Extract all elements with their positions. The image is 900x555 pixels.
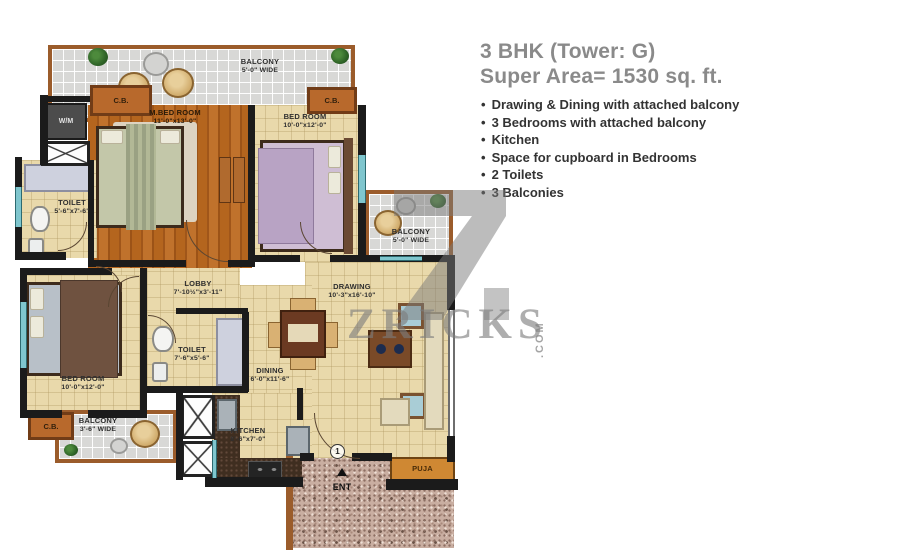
door-number: 1 <box>335 447 339 456</box>
balcony-right-label: BALCONY 5'-0" WIDE <box>375 227 447 246</box>
cb-label: C.B. <box>114 96 129 105</box>
bullet-icon: • <box>481 167 486 182</box>
wall <box>255 255 300 262</box>
room-name: M.BED ROOM <box>149 108 201 117</box>
wall <box>40 95 48 165</box>
entrance-label: ENT <box>322 468 362 495</box>
feature-text: 2 Toilets <box>492 167 544 182</box>
room-dims: 5'-6"x7'-6" <box>40 208 104 217</box>
wall <box>176 393 183 480</box>
feature-item: •Drawing & Dining with attached balcony <box>481 96 739 114</box>
wall <box>447 255 455 310</box>
pillow <box>328 172 341 194</box>
room-name: BED ROOM <box>284 112 327 121</box>
room-dims: 10'-3"x16'-10" <box>312 292 392 301</box>
wall <box>176 308 248 314</box>
watermark-suffix: .COM <box>534 321 546 358</box>
room-dims: 11'-0"x13'-0" <box>120 118 230 127</box>
feature-text: 3 Balconies <box>492 185 564 200</box>
wall <box>300 453 314 461</box>
balcony-door-window <box>380 256 422 261</box>
room-name: DRAWING <box>333 282 371 291</box>
wall <box>22 410 62 418</box>
room-name: BALCONY <box>79 416 117 425</box>
pillow <box>30 316 44 338</box>
kitchen-label: KITCHEN 8'-6"x7'-0" <box>218 426 278 445</box>
toilet2-label: TOILET 7'-6"x5'-6" <box>152 345 232 364</box>
armchair <box>380 398 410 426</box>
bedroom3-label: BED ROOM 10'-0"x12'-0" <box>35 374 131 393</box>
room-name: TOILET <box>178 345 206 354</box>
wall <box>147 386 248 393</box>
room-name: KITCHEN <box>231 426 266 435</box>
puja-room: PUJA <box>390 457 455 481</box>
feature-list: •Drawing & Dining with attached balcony … <box>481 96 739 201</box>
wicker-chair <box>162 68 194 98</box>
title-line2: Super Area= 1530 sq. ft. <box>480 65 723 90</box>
lift-shaft <box>181 441 215 477</box>
room-dims: 3'-6" WIDE <box>62 426 134 435</box>
room-dims: 7'-6"x5'-6" <box>152 355 232 364</box>
window <box>358 155 366 203</box>
bullet-icon: • <box>481 132 486 147</box>
wall <box>447 436 455 462</box>
room-dims: 10'-0"x12'-0" <box>255 122 355 131</box>
floor-plan-page: BALCONY 5'-0" WIDE C.B. C.B. W/M TOILET … <box>0 0 900 555</box>
bed-headboard <box>344 138 353 254</box>
lobby-label: LOBBY 7'-10½"x3'-11" <box>160 279 236 298</box>
feature-text: Drawing & Dining with attached balcony <box>492 97 740 112</box>
side-table <box>398 303 424 329</box>
pillow <box>101 130 123 144</box>
wall <box>297 388 303 420</box>
pillow <box>328 146 341 168</box>
room-dims: 7'-10½"x3'-11" <box>160 289 236 298</box>
balcony-top-label: BALCONY 5'-0" WIDE <box>205 57 315 76</box>
plant-icon <box>430 194 446 208</box>
feature-text: 3 Bedrooms with attached balcony <box>492 115 707 130</box>
feature-text: Kitchen <box>492 132 540 147</box>
room-name: LOBBY <box>184 279 211 288</box>
plant-icon <box>64 444 78 456</box>
room-name: DINING <box>256 366 283 375</box>
wicker-chair <box>130 420 160 448</box>
title-line1: 3 BHK (Tower: G) <box>480 40 723 65</box>
window <box>20 302 27 368</box>
shaft-cross <box>181 395 215 439</box>
door-number-badge: 1 <box>330 444 345 459</box>
pillow <box>30 288 44 310</box>
wall <box>18 252 66 260</box>
room-name: TOILET <box>58 198 86 207</box>
wm-label: W/M <box>59 118 73 125</box>
feature-item: •Kitchen <box>481 131 739 149</box>
bullet-icon: • <box>481 150 486 165</box>
dining-label: DINING 6'-0"x11'-6" <box>238 366 302 385</box>
zricks-com-watermark: .COM <box>534 321 546 358</box>
washing-machine: W/M <box>45 103 87 140</box>
shower-tray <box>24 164 92 192</box>
shaft-cross <box>41 141 90 166</box>
speaker-icon <box>394 344 404 354</box>
sofa <box>424 312 444 430</box>
puja-label: PUJA <box>412 464 433 474</box>
feature-item: •3 Balconies <box>481 184 739 202</box>
toilet1-label: TOILET 5'-6"x7'-6" <box>40 198 104 217</box>
bed-blanket <box>126 124 156 230</box>
cb-label: C.B. <box>325 96 340 105</box>
pillow <box>160 130 180 144</box>
wall <box>358 105 366 155</box>
window <box>212 440 217 478</box>
entry-arrow-icon <box>337 468 347 476</box>
plant-icon <box>331 48 349 64</box>
feature-item: •2 Toilets <box>481 166 739 184</box>
window <box>448 310 455 436</box>
wash-basin <box>152 362 168 382</box>
drawing-label: DRAWING 10'-3"x16'-10" <box>312 282 392 301</box>
cb-label: C.B. <box>44 422 59 431</box>
tv-console <box>368 330 412 368</box>
room-name: BED ROOM <box>62 374 105 383</box>
window <box>15 187 22 227</box>
wall <box>228 260 255 267</box>
fridge <box>286 426 310 456</box>
room-dims: 6'-0"x11'-6" <box>238 376 302 385</box>
table-runner <box>288 324 318 342</box>
wardrobe-doors <box>233 157 245 203</box>
wall <box>248 105 255 263</box>
room-dims: 5'-0" WIDE <box>205 67 315 76</box>
cupboard-cb-right: C.B. <box>307 87 357 114</box>
plan-title: 3 BHK (Tower: G) Super Area= 1530 sq. ft… <box>480 40 723 90</box>
wall <box>358 203 366 262</box>
master-bedroom-label: M.BED ROOM 11'-0"x13'-0" <box>120 108 230 127</box>
wardrobe-doors <box>219 157 231 203</box>
feature-item: •3 Bedrooms with attached balcony <box>481 114 739 132</box>
bedroom2-label: BED ROOM 10'-0"x12'-0" <box>255 112 355 131</box>
room-name: BALCONY <box>241 57 279 66</box>
room-name: BALCONY <box>392 227 430 236</box>
feature-text: Space for cupboard in Bedrooms <box>492 150 697 165</box>
ent-text: ENT <box>333 482 352 492</box>
bullet-icon: • <box>481 185 486 200</box>
balcony-left-label: BALCONY 3'-6" WIDE <box>62 416 134 435</box>
wall <box>330 255 366 262</box>
wall <box>42 96 90 102</box>
dining-chair <box>325 322 338 348</box>
speaker-icon <box>376 344 386 354</box>
wall <box>205 477 303 487</box>
plant-icon <box>88 48 108 66</box>
wall <box>15 157 22 187</box>
bowl <box>110 438 128 454</box>
room-dims: 8'-6"x7'-0" <box>218 436 278 445</box>
bullet-icon: • <box>481 97 486 112</box>
room-dims: 10'-0"x12'-0" <box>35 384 131 393</box>
bullet-icon: • <box>481 115 486 130</box>
wall <box>386 479 458 490</box>
balcony-table <box>396 197 416 215</box>
wall <box>140 268 147 418</box>
room-dims: 5'-0" WIDE <box>375 237 447 246</box>
feature-item: •Space for cupboard in Bedrooms <box>481 149 739 167</box>
